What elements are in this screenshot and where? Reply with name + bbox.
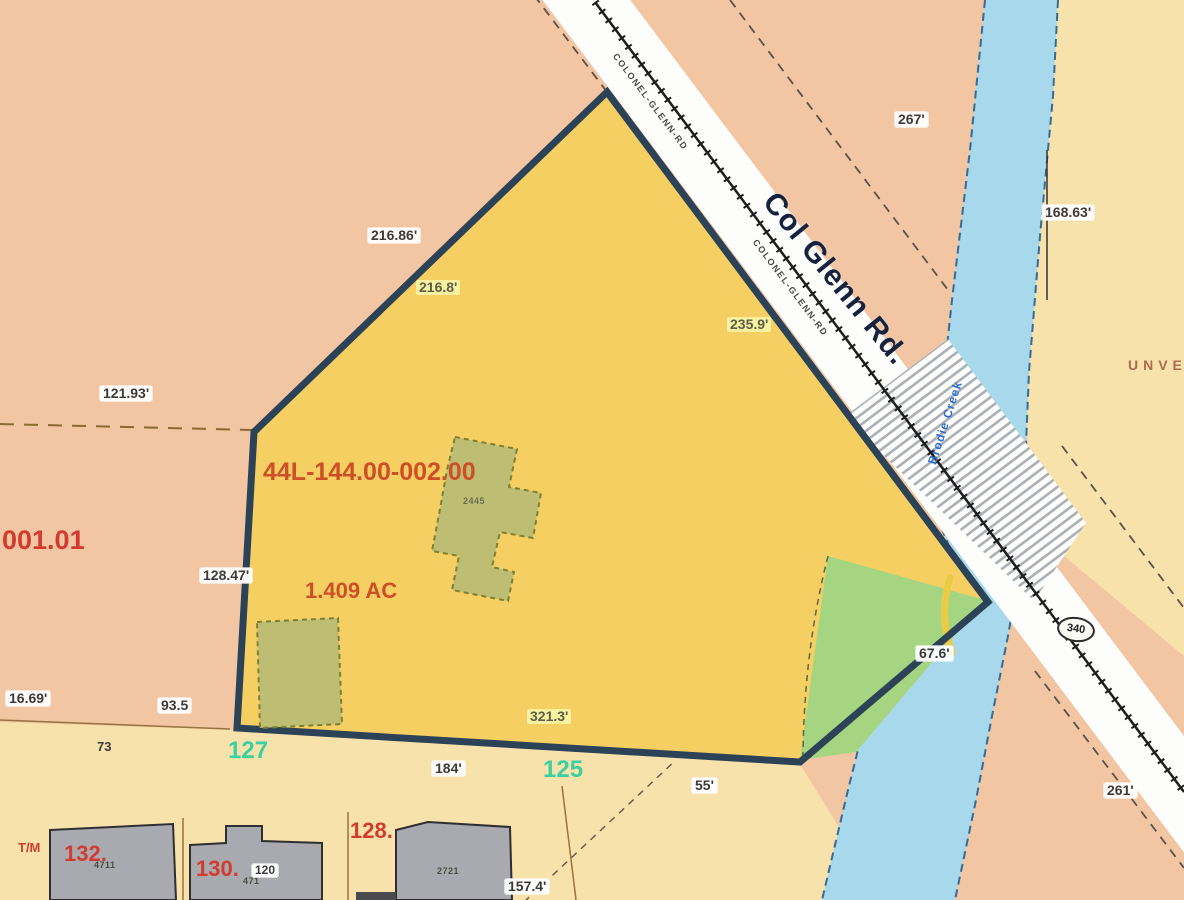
dim-55: 55' [692,778,717,793]
lot-127-label: 127 [228,738,268,764]
addr-471-label: 471 [243,877,260,887]
parcel-edge-s-dim: 321.3' [527,709,571,724]
dim-267: 267' [895,112,928,127]
secondary-building-footprint [257,618,342,728]
dim-261: 261' [1104,783,1137,798]
dim-121-93: 121.93' [100,386,152,401]
dim-128-47: 128.47' [200,568,252,583]
unverified-label: UNVE [1128,358,1184,373]
dim-168-63: 168.63' [1042,205,1094,220]
dim-216-86: 216.86' [368,228,420,243]
dim-93-5: 93.5 [158,698,191,713]
tm-note-label: T/M [18,841,40,855]
parcel-001-01-label: 001.01 [2,526,85,556]
dim-67-6: 67.6' [916,646,953,661]
parcel-map: Col Glenn Rd. COLONEL-GLENN-RD COLONEL-G… [0,0,1184,900]
house-130-label: 130. [196,857,239,881]
addr-2721-label: 2721 [437,867,459,877]
parcel-edge-nw-dim: 216.8' [416,280,460,295]
house-128-footprint [396,822,512,900]
addr-120-label: 120 [252,864,278,877]
dim-16-69: 16.69' [6,691,50,706]
dim-184: 184' [432,761,465,776]
dim-73: 73 [97,740,111,754]
shed-footprint [356,892,396,900]
parcel-id-label: 44L-144.00-002.00 [263,459,476,487]
parcel-acreage-label: 1.409 AC [305,579,397,603]
addr-4711-label: 4711 [94,861,116,871]
parcel-edge-ne-dim: 235.9' [727,317,771,332]
house-128-label: 128. [350,819,393,843]
map-canvas [0,0,1184,900]
building-number-label: 2445 [463,497,485,507]
lot-125-label: 125 [543,757,583,783]
dim-157-4: 157.4' [505,879,549,894]
